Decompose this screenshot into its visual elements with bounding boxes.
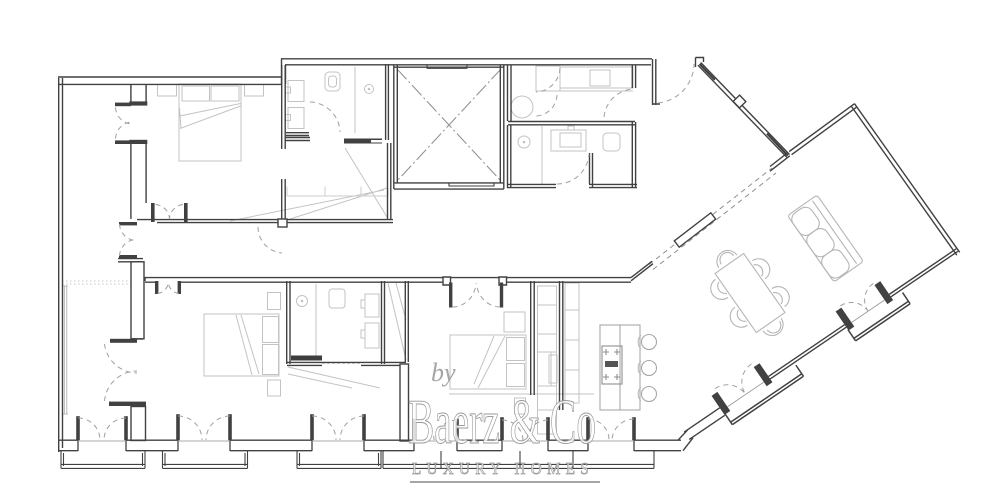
svg-text:by: by [431,358,456,387]
svg-text:LUXURY HOMES: LUXURY HOMES [412,459,594,478]
svg-text:Baerz & Co: Baerz & Co [408,387,596,457]
